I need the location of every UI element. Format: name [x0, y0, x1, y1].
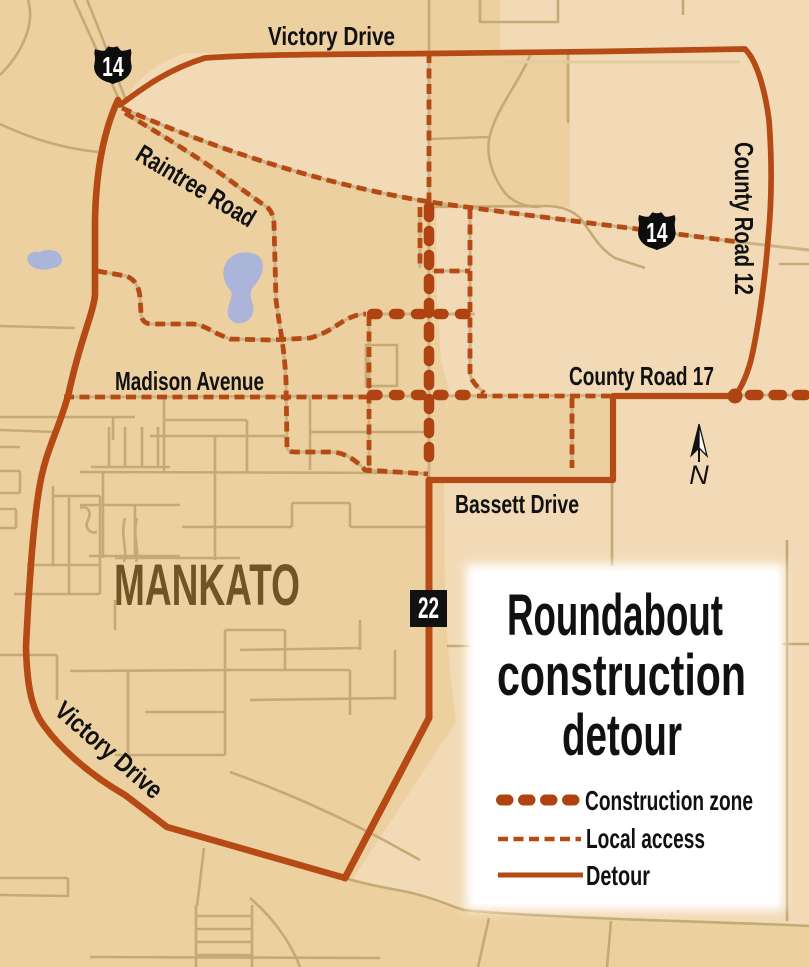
svg-text:Construction zone: Construction zone: [585, 785, 753, 816]
svg-text:Detour: Detour: [586, 860, 650, 891]
svg-text:N: N: [689, 460, 709, 490]
svg-text:Madison Avenue: Madison Avenue: [115, 366, 264, 396]
svg-text:Roundabout: Roundabout: [507, 583, 723, 648]
svg-text:MANKATO: MANKATO: [114, 553, 300, 618]
svg-text:County Road 17: County Road 17: [569, 361, 714, 391]
svg-text:Local access: Local access: [586, 823, 705, 854]
svg-text:detour: detour: [562, 703, 682, 768]
svg-text:22: 22: [418, 592, 439, 625]
svg-text:construction: construction: [497, 643, 746, 708]
svg-text:14: 14: [646, 217, 668, 248]
svg-text:Bassett Drive: Bassett Drive: [455, 489, 579, 519]
svg-text:County Road 12: County Road 12: [729, 142, 759, 295]
svg-text:14: 14: [102, 51, 124, 82]
svg-text:Victory Drive: Victory Drive: [268, 21, 395, 51]
